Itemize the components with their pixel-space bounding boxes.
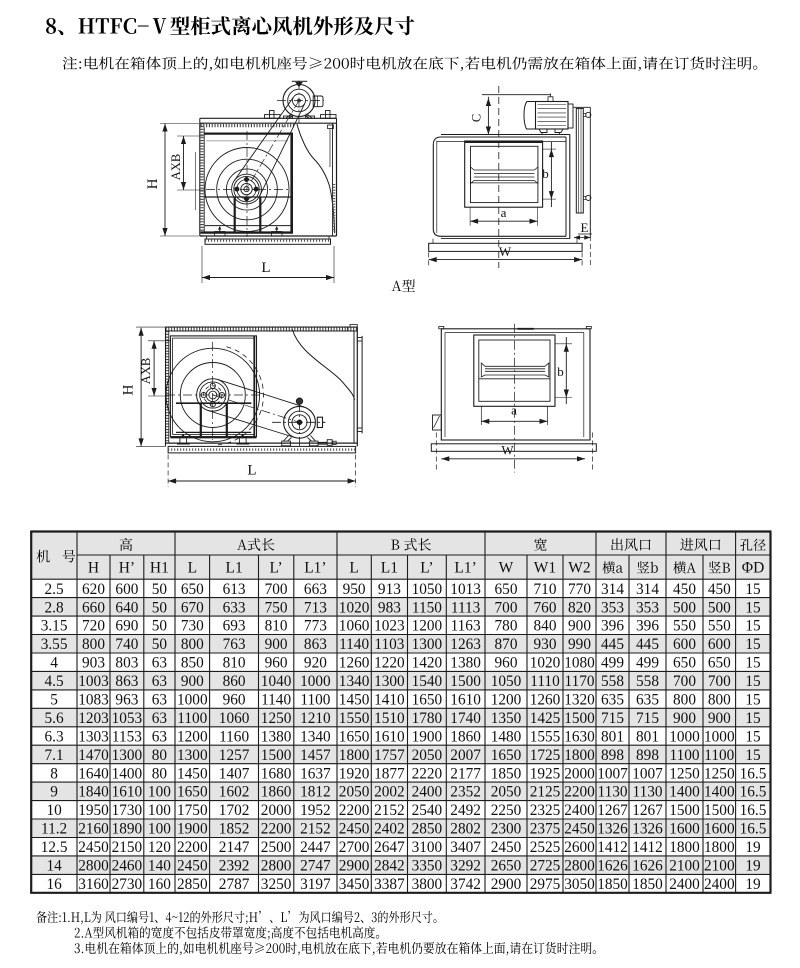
svg-text:690: 690 — [115, 618, 138, 635]
svg-text:120: 120 — [148, 839, 171, 856]
svg-text:80: 80 — [152, 765, 168, 782]
svg-text:2650: 2650 — [491, 858, 522, 875]
svg-text:1650: 1650 — [412, 692, 443, 709]
svg-text:1950: 1950 — [78, 802, 109, 819]
svg-text:1555: 1555 — [530, 728, 561, 745]
svg-text:2152: 2152 — [374, 802, 405, 819]
svg-text:800: 800 — [673, 692, 696, 709]
svg-text:314: 314 — [636, 581, 659, 598]
svg-text:1250: 1250 — [261, 710, 292, 727]
svg-text:2492: 2492 — [450, 802, 481, 819]
svg-text:314: 314 — [601, 581, 624, 598]
svg-text:1150: 1150 — [412, 599, 442, 616]
svg-text:500: 500 — [708, 599, 731, 616]
svg-text:1610: 1610 — [112, 784, 143, 801]
svg-text:15: 15 — [745, 692, 761, 709]
svg-text:650: 650 — [181, 581, 204, 598]
svg-text:1812: 1812 — [300, 784, 331, 801]
svg-text:2125: 2125 — [530, 784, 561, 801]
svg-text:1340: 1340 — [300, 728, 331, 745]
svg-text:1860: 1860 — [261, 784, 292, 801]
svg-text:650: 650 — [495, 581, 518, 598]
svg-text:2050: 2050 — [339, 784, 370, 801]
svg-text:10: 10 — [46, 802, 62, 819]
svg-text:H: H — [145, 178, 161, 189]
svg-text:1900: 1900 — [412, 728, 443, 745]
svg-text:50: 50 — [152, 581, 168, 598]
svg-text:550: 550 — [673, 618, 696, 635]
svg-text:2700: 2700 — [339, 839, 370, 856]
svg-text:960: 960 — [223, 692, 246, 709]
svg-text:1000: 1000 — [704, 728, 735, 745]
svg-text:2325: 2325 — [530, 802, 561, 819]
svg-text:1000: 1000 — [177, 692, 208, 709]
svg-text:AXB: AXB — [139, 358, 153, 384]
svg-text:W: W — [499, 560, 514, 577]
svg-text:1200: 1200 — [491, 692, 522, 709]
svg-text:1610: 1610 — [374, 728, 405, 745]
svg-text:1003: 1003 — [78, 673, 109, 690]
svg-text:2787: 2787 — [219, 876, 250, 893]
svg-text:810: 810 — [265, 618, 288, 635]
svg-text:803: 803 — [115, 655, 138, 672]
svg-text:763: 763 — [223, 636, 246, 653]
svg-text:730: 730 — [181, 618, 204, 635]
svg-text:670: 670 — [181, 599, 204, 616]
svg-text:558: 558 — [601, 673, 624, 690]
svg-text:740: 740 — [115, 636, 138, 653]
svg-text:L1’: L1’ — [454, 560, 476, 577]
svg-text:L’: L’ — [420, 560, 433, 577]
svg-text:750: 750 — [265, 599, 288, 616]
svg-text:558: 558 — [636, 673, 659, 690]
svg-text:2525: 2525 — [530, 839, 561, 856]
svg-text:3100: 3100 — [412, 839, 443, 856]
svg-text:2842: 2842 — [374, 858, 405, 875]
svg-text:2400: 2400 — [412, 784, 443, 801]
svg-text:1130: 1130 — [632, 784, 662, 801]
svg-text:1210: 1210 — [300, 710, 331, 727]
svg-text:3250: 3250 — [261, 876, 292, 893]
svg-text:ΦD: ΦD — [742, 560, 765, 577]
svg-text:1800: 1800 — [339, 747, 370, 764]
svg-text:660: 660 — [82, 599, 105, 616]
svg-text:450: 450 — [708, 581, 731, 598]
svg-text:50: 50 — [152, 636, 168, 653]
svg-text:3350: 3350 — [412, 858, 443, 875]
svg-text:635: 635 — [636, 692, 659, 709]
svg-text:H: H — [88, 560, 99, 577]
svg-text:3742: 3742 — [450, 876, 481, 893]
svg-text:63: 63 — [152, 655, 168, 672]
svg-text:2450: 2450 — [78, 839, 109, 856]
svg-text:1600: 1600 — [704, 821, 735, 838]
svg-text:1800: 1800 — [704, 839, 735, 856]
svg-text:63: 63 — [152, 710, 168, 727]
svg-text:2100: 2100 — [704, 858, 735, 875]
svg-text:780: 780 — [495, 618, 518, 635]
svg-text:713: 713 — [304, 599, 327, 616]
svg-text:900: 900 — [673, 710, 696, 727]
svg-text:3197: 3197 — [300, 876, 331, 893]
svg-text:1500: 1500 — [450, 673, 481, 690]
svg-text:1000: 1000 — [669, 728, 700, 745]
svg-text:2460: 2460 — [112, 858, 143, 875]
svg-text:898: 898 — [601, 747, 624, 764]
svg-text:1900: 1900 — [177, 821, 208, 838]
svg-text:1000: 1000 — [300, 673, 331, 690]
svg-text:2150: 2150 — [112, 839, 143, 856]
svg-text:983: 983 — [378, 599, 401, 616]
svg-text:2007: 2007 — [450, 747, 481, 764]
svg-text:1400: 1400 — [704, 784, 735, 801]
svg-text:2450: 2450 — [339, 821, 370, 838]
svg-text:W: W — [501, 443, 514, 458]
svg-text:1300: 1300 — [112, 747, 143, 764]
svg-text:613: 613 — [223, 581, 246, 598]
svg-text:960: 960 — [495, 655, 518, 672]
svg-text:63: 63 — [152, 673, 168, 690]
svg-text:3387: 3387 — [374, 876, 405, 893]
svg-text:1200: 1200 — [412, 618, 443, 635]
svg-text:1130: 1130 — [597, 784, 627, 801]
svg-text:1550: 1550 — [339, 710, 370, 727]
svg-text:800: 800 — [181, 636, 204, 653]
svg-text:100: 100 — [148, 784, 171, 801]
svg-text:2850: 2850 — [412, 821, 443, 838]
svg-text:1630: 1630 — [564, 728, 595, 745]
svg-text:1267: 1267 — [632, 802, 663, 819]
svg-text:1100: 1100 — [669, 747, 699, 764]
svg-text:801: 801 — [601, 728, 624, 745]
svg-text:1412: 1412 — [632, 839, 663, 856]
svg-text:16.5: 16.5 — [740, 802, 767, 819]
svg-text:1952: 1952 — [300, 802, 331, 819]
svg-text:15: 15 — [745, 636, 761, 653]
svg-text:L: L — [247, 463, 256, 479]
svg-text:H’: H’ — [119, 560, 135, 577]
svg-text:1500: 1500 — [669, 802, 700, 819]
svg-text:1510: 1510 — [374, 710, 405, 727]
svg-text:1637: 1637 — [300, 765, 331, 782]
svg-text:1080: 1080 — [564, 655, 595, 672]
svg-text:2000: 2000 — [261, 802, 292, 819]
svg-text:1020: 1020 — [339, 599, 370, 616]
svg-text:W2: W2 — [568, 560, 590, 577]
svg-text:870: 870 — [495, 636, 518, 653]
svg-text:C: C — [470, 114, 484, 122]
svg-text:1060: 1060 — [219, 710, 250, 727]
svg-text:H1: H1 — [150, 560, 169, 577]
svg-text:100: 100 — [148, 802, 171, 819]
svg-text:499: 499 — [636, 655, 659, 672]
svg-text:100: 100 — [148, 821, 171, 838]
svg-text:1053: 1053 — [112, 710, 143, 727]
svg-text:450: 450 — [673, 581, 696, 598]
svg-text:15: 15 — [745, 655, 761, 672]
svg-text:900: 900 — [265, 636, 288, 653]
svg-text:15: 15 — [745, 581, 761, 598]
svg-text:1650: 1650 — [177, 784, 208, 801]
svg-text:1040: 1040 — [261, 673, 292, 690]
svg-text:710: 710 — [534, 581, 557, 598]
svg-text:1850: 1850 — [491, 765, 522, 782]
svg-text:a: a — [511, 403, 517, 418]
svg-text:2540: 2540 — [412, 802, 443, 819]
svg-text:2152: 2152 — [300, 821, 331, 838]
svg-text:15: 15 — [745, 599, 761, 616]
svg-text:2300: 2300 — [491, 821, 522, 838]
svg-text:820: 820 — [568, 599, 591, 616]
svg-text:1023: 1023 — [374, 618, 405, 635]
svg-text:650: 650 — [673, 655, 696, 672]
svg-text:1163: 1163 — [451, 618, 481, 635]
svg-text:2147: 2147 — [219, 839, 250, 856]
svg-text:950: 950 — [343, 581, 366, 598]
svg-text:16.5: 16.5 — [740, 821, 767, 838]
svg-text:1457: 1457 — [300, 747, 331, 764]
svg-text:900: 900 — [708, 710, 731, 727]
svg-text:2002: 2002 — [374, 784, 405, 801]
svg-text:700: 700 — [495, 599, 518, 616]
svg-text:4.5: 4.5 — [45, 673, 64, 690]
svg-text:600: 600 — [708, 636, 731, 653]
svg-text:2447: 2447 — [300, 839, 331, 856]
svg-text:1100: 1100 — [704, 747, 734, 764]
svg-text:396: 396 — [636, 618, 659, 635]
svg-text:1007: 1007 — [597, 765, 628, 782]
svg-text:1852: 1852 — [219, 821, 250, 838]
svg-text:2100: 2100 — [669, 858, 700, 875]
svg-text:1326: 1326 — [632, 821, 663, 838]
svg-text:550: 550 — [708, 618, 731, 635]
svg-text:2725: 2725 — [530, 858, 561, 875]
svg-text:1250: 1250 — [704, 765, 735, 782]
svg-text:633: 633 — [223, 599, 246, 616]
svg-text:1500: 1500 — [564, 710, 595, 727]
svg-text:1203: 1203 — [78, 710, 109, 727]
svg-text:1260: 1260 — [530, 692, 561, 709]
svg-text:1640: 1640 — [78, 765, 109, 782]
svg-text:1140: 1140 — [339, 636, 369, 653]
svg-text:63: 63 — [152, 728, 168, 745]
svg-text:L: L — [349, 560, 358, 577]
svg-text:913: 913 — [378, 581, 401, 598]
svg-text:898: 898 — [636, 747, 659, 764]
svg-text:19: 19 — [745, 876, 761, 893]
svg-text:2400: 2400 — [704, 876, 735, 893]
svg-text:1890: 1890 — [112, 821, 143, 838]
svg-text:15: 15 — [745, 747, 761, 764]
svg-text:770: 770 — [568, 581, 591, 598]
svg-text:1626: 1626 — [597, 858, 628, 875]
svg-text:445: 445 — [636, 636, 659, 653]
svg-text:1320: 1320 — [564, 692, 595, 709]
svg-text:1925: 1925 — [530, 765, 561, 782]
svg-text:1007: 1007 — [632, 765, 663, 782]
svg-text:L: L — [261, 260, 270, 276]
svg-text:1300: 1300 — [412, 636, 443, 653]
svg-text:3.15: 3.15 — [41, 618, 68, 635]
svg-text:14: 14 — [46, 858, 62, 875]
svg-text:2.8: 2.8 — [45, 599, 64, 616]
svg-text:900: 900 — [181, 673, 204, 690]
svg-text:7.1: 7.1 — [45, 747, 64, 764]
svg-text:1300: 1300 — [177, 747, 208, 764]
svg-text:1250: 1250 — [669, 765, 700, 782]
svg-text:1013: 1013 — [450, 581, 481, 598]
svg-text:1420: 1420 — [412, 655, 443, 672]
svg-text:1200: 1200 — [177, 728, 208, 745]
svg-text:b: b — [557, 364, 564, 379]
svg-text:1153: 1153 — [112, 728, 142, 745]
svg-text:140: 140 — [148, 858, 171, 875]
svg-text:1702: 1702 — [219, 802, 250, 819]
svg-text:1650: 1650 — [491, 747, 522, 764]
svg-text:1340: 1340 — [339, 673, 370, 690]
svg-text:1800: 1800 — [669, 839, 700, 856]
svg-text:15: 15 — [745, 618, 761, 635]
svg-text:50: 50 — [152, 599, 168, 616]
svg-text:1650: 1650 — [339, 728, 370, 745]
svg-text:635: 635 — [601, 692, 624, 709]
svg-text:L1: L1 — [225, 560, 242, 577]
svg-text:1500: 1500 — [261, 747, 292, 764]
svg-text:1680: 1680 — [261, 765, 292, 782]
svg-text:2730: 2730 — [112, 876, 143, 893]
svg-text:900: 900 — [568, 618, 591, 635]
svg-text:720: 720 — [82, 618, 105, 635]
svg-text:11.2: 11.2 — [41, 821, 67, 838]
svg-text:1480: 1480 — [491, 728, 522, 745]
svg-text:b: b — [542, 166, 549, 181]
svg-text:3800: 3800 — [412, 876, 443, 893]
svg-text:1470: 1470 — [78, 747, 109, 764]
svg-text:2802: 2802 — [450, 821, 481, 838]
svg-text:2352: 2352 — [450, 784, 481, 801]
svg-text:2375: 2375 — [530, 821, 561, 838]
svg-text:1450: 1450 — [339, 692, 370, 709]
svg-text:2000: 2000 — [564, 765, 595, 782]
svg-text:W1: W1 — [534, 560, 556, 577]
svg-text:15: 15 — [745, 728, 761, 745]
svg-text:80: 80 — [152, 747, 168, 764]
svg-text:700: 700 — [708, 673, 731, 690]
svg-text:2402: 2402 — [374, 821, 405, 838]
svg-text:L1’: L1’ — [304, 560, 326, 577]
svg-text:1407: 1407 — [219, 765, 250, 782]
svg-text:1725: 1725 — [530, 747, 561, 764]
svg-text:E: E — [581, 220, 589, 235]
svg-text:1602: 1602 — [219, 784, 250, 801]
svg-text:16.5: 16.5 — [740, 765, 767, 782]
svg-text:640: 640 — [115, 599, 138, 616]
svg-text:715: 715 — [601, 710, 624, 727]
svg-text:1750: 1750 — [177, 802, 208, 819]
svg-text:1050: 1050 — [412, 581, 443, 598]
svg-text:1103: 1103 — [374, 636, 404, 653]
svg-text:800: 800 — [82, 636, 105, 653]
svg-text:760: 760 — [534, 599, 557, 616]
svg-text:840: 840 — [534, 618, 557, 635]
svg-text:AXB: AXB — [169, 154, 183, 180]
svg-text:1730: 1730 — [112, 802, 143, 819]
svg-text:2450: 2450 — [177, 858, 208, 875]
svg-text:1050: 1050 — [491, 673, 522, 690]
svg-text:810: 810 — [223, 655, 246, 672]
svg-text:1800: 1800 — [564, 747, 595, 764]
svg-text:2200: 2200 — [564, 784, 595, 801]
svg-text:1850: 1850 — [597, 876, 628, 893]
svg-text:2800: 2800 — [564, 858, 595, 875]
svg-text:500: 500 — [673, 599, 696, 616]
svg-text:2200: 2200 — [339, 802, 370, 819]
svg-text:860: 860 — [223, 673, 246, 690]
svg-text:499: 499 — [601, 655, 624, 672]
svg-text:2800: 2800 — [78, 858, 109, 875]
svg-text:15: 15 — [745, 673, 761, 690]
svg-text:16.5: 16.5 — [740, 784, 767, 801]
svg-text:445: 445 — [601, 636, 624, 653]
svg-text:1060: 1060 — [339, 618, 370, 635]
svg-text:930: 930 — [534, 636, 557, 653]
svg-text:963: 963 — [115, 692, 138, 709]
svg-text:19: 19 — [745, 858, 761, 875]
svg-text:960: 960 — [265, 655, 288, 672]
svg-text:1400: 1400 — [112, 765, 143, 782]
svg-text:1540: 1540 — [412, 673, 443, 690]
svg-text:1610: 1610 — [450, 692, 481, 709]
svg-text:3.55: 3.55 — [41, 636, 68, 653]
svg-text:1840: 1840 — [78, 784, 109, 801]
svg-text:2392: 2392 — [219, 858, 250, 875]
svg-text:1110: 1110 — [530, 673, 560, 690]
svg-text:353: 353 — [601, 599, 624, 616]
svg-text:773: 773 — [304, 618, 327, 635]
svg-text:353: 353 — [636, 599, 659, 616]
svg-text:1100: 1100 — [300, 692, 330, 709]
svg-text:693: 693 — [223, 618, 246, 635]
svg-text:63: 63 — [152, 692, 168, 709]
svg-text:2450: 2450 — [564, 821, 595, 838]
svg-text:1257: 1257 — [219, 747, 250, 764]
svg-text:1380: 1380 — [261, 728, 292, 745]
svg-text:2647: 2647 — [374, 839, 405, 856]
svg-text:2160: 2160 — [78, 821, 109, 838]
svg-text:396: 396 — [601, 618, 624, 635]
svg-text:700: 700 — [673, 673, 696, 690]
svg-text:2.5: 2.5 — [45, 581, 64, 598]
svg-text:920: 920 — [304, 655, 327, 672]
svg-text:L: L — [188, 560, 197, 577]
svg-text:1410: 1410 — [374, 692, 405, 709]
svg-text:1100: 1100 — [177, 710, 207, 727]
svg-text:3160: 3160 — [78, 876, 109, 893]
svg-text:3450: 3450 — [339, 876, 370, 893]
svg-text:1160: 1160 — [219, 728, 249, 745]
svg-text:2747: 2747 — [300, 858, 331, 875]
svg-text:620: 620 — [82, 581, 105, 598]
svg-text:3050: 3050 — [564, 876, 595, 893]
svg-text:9: 9 — [50, 784, 58, 801]
svg-text:2200: 2200 — [177, 839, 208, 856]
svg-text:650: 650 — [708, 655, 731, 672]
svg-text:4: 4 — [50, 655, 58, 672]
svg-text:a: a — [501, 205, 507, 220]
svg-text:1267: 1267 — [597, 802, 628, 819]
svg-text:2177: 2177 — [450, 765, 481, 782]
svg-text:1600: 1600 — [669, 821, 700, 838]
